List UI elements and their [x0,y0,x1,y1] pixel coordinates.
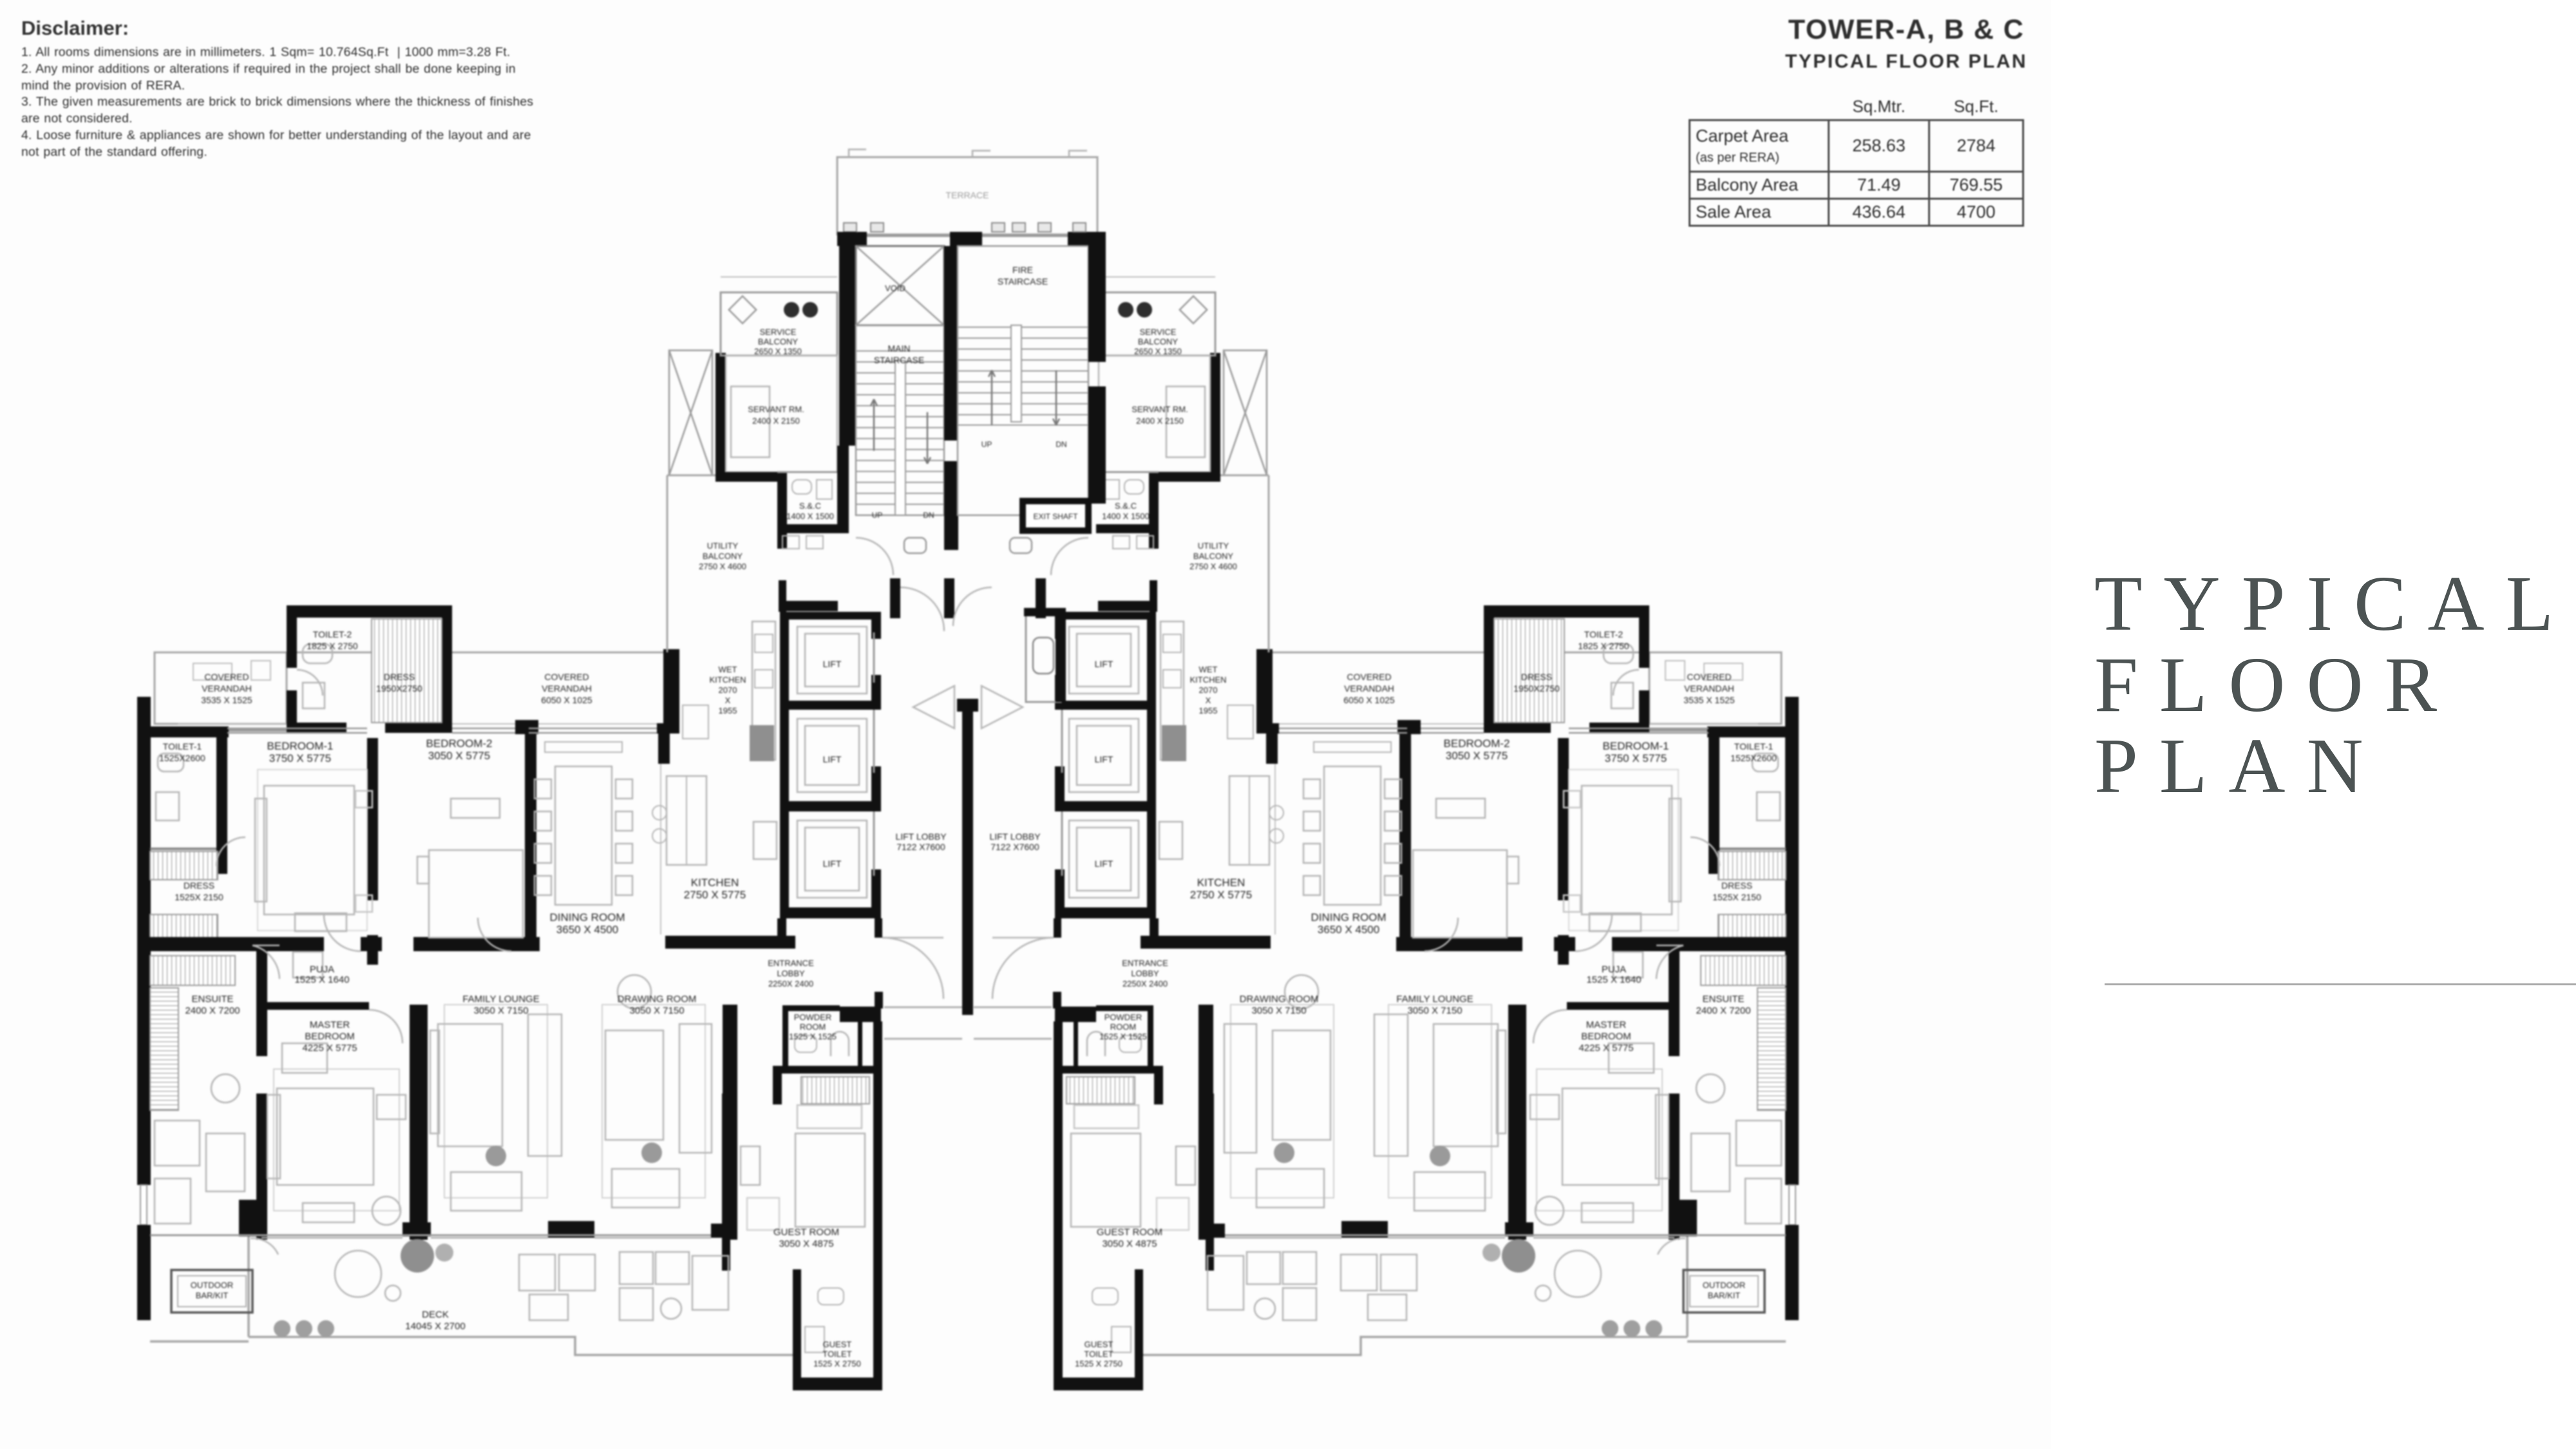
svg-text:KITCHEN: KITCHEN [709,675,746,685]
svg-text:6050 X 1025: 6050 X 1025 [541,695,592,705]
svg-text:ENSUITE: ENSUITE [191,994,233,1005]
svg-text:LIFT: LIFT [1095,858,1113,869]
svg-text:BALCONY: BALCONY [1138,337,1178,346]
svg-text:KITCHEN: KITCHEN [691,876,739,889]
svg-text:3750 X 5775: 3750 X 5775 [1605,752,1667,764]
svg-text:DRAWING ROOM: DRAWING ROOM [618,994,697,1005]
svg-text:BEDROOM-2: BEDROOM-2 [426,737,493,750]
svg-text:SERVICE: SERVICE [1140,327,1177,337]
svg-text:1525X 2150: 1525X 2150 [175,892,223,902]
svg-text:2750 X 4600: 2750 X 4600 [1189,562,1237,571]
svg-text:ENTRANCE: ENTRANCE [768,958,814,968]
svg-text:TOILET-2: TOILET-2 [1584,629,1624,639]
svg-text:SERVICE: SERVICE [760,327,797,337]
svg-text:VOID: VOID [885,283,905,293]
svg-text:TERRACE: TERRACE [946,190,989,200]
svg-text:VERANDAH: VERANDAH [1684,683,1734,694]
svg-text:DRAWING ROOM: DRAWING ROOM [1240,994,1319,1005]
svg-text:MAIN: MAIN [888,343,911,354]
svg-text:LIFT: LIFT [823,659,842,669]
svg-text:UTILITY: UTILITY [1198,541,1229,551]
svg-text:EXIT SHAFT: EXIT SHAFT [1033,512,1078,521]
svg-text:1525 X 1525: 1525 X 1525 [789,1032,837,1041]
svg-text:2400 X 7200: 2400 X 7200 [185,1005,240,1016]
svg-text:4225 X 5775: 4225 X 5775 [302,1043,357,1054]
svg-text:3750 X 5775: 3750 X 5775 [269,752,331,764]
svg-text:1955: 1955 [1199,706,1218,715]
svg-text:3050 X 7150: 3050 X 7150 [473,1005,528,1016]
svg-text:3050 X 7150: 3050 X 7150 [1407,1005,1462,1016]
svg-text:POWDER: POWDER [794,1012,832,1022]
svg-text:1525X2600: 1525X2600 [1730,753,1777,763]
svg-text:2070: 2070 [1199,685,1218,695]
svg-text:GUEST: GUEST [823,1340,852,1349]
svg-text:GUEST ROOM: GUEST ROOM [773,1227,839,1238]
svg-text:TOILET: TOILET [822,1349,851,1359]
svg-text:DINING ROOM: DINING ROOM [1311,911,1386,923]
svg-text:14045 X 2700: 14045 X 2700 [405,1321,465,1332]
svg-text:1525 X 1640: 1525 X 1640 [1586,974,1641,985]
svg-text:COVERED: COVERED [544,672,589,682]
svg-text:COVERED: COVERED [1347,672,1391,682]
svg-text:PUJA: PUJA [1602,964,1626,975]
svg-text:STAIRCASE: STAIRCASE [874,355,924,365]
svg-text:LIFT: LIFT [823,754,842,764]
svg-text:TOILET-1: TOILET-1 [1734,741,1774,752]
svg-text:1525 X 2750: 1525 X 2750 [813,1359,861,1368]
svg-text:SERVANT RM.: SERVANT RM. [748,404,804,414]
svg-text:2650 X 1350: 2650 X 1350 [1134,346,1182,356]
svg-text:6050 X 1025: 6050 X 1025 [1343,695,1395,705]
svg-text:1525 X 1640: 1525 X 1640 [294,974,349,985]
svg-text:UP: UP [872,511,883,520]
svg-text:4225 X 5775: 4225 X 5775 [1578,1043,1633,1054]
svg-text:TOILET-1: TOILET-1 [163,741,202,752]
svg-text:BALCONY: BALCONY [1193,551,1233,561]
svg-text:2750 X 4600: 2750 X 4600 [699,562,746,571]
svg-text:2250X 2400: 2250X 2400 [768,979,813,989]
svg-text:X: X [725,696,731,705]
svg-text:1825 X 2750: 1825 X 2750 [1578,641,1629,651]
svg-text:OUTDOOR: OUTDOOR [1703,1280,1745,1290]
svg-text:LIFT: LIFT [1095,754,1113,764]
svg-text:2070: 2070 [719,685,737,695]
svg-text:ROOM: ROOM [800,1022,826,1032]
svg-text:FAMILY LOUNGE: FAMILY LOUNGE [1396,994,1473,1005]
svg-text:LIFT: LIFT [1095,659,1113,669]
svg-text:COVERED: COVERED [1687,672,1731,682]
svg-text:ENTRANCE: ENTRANCE [1122,958,1168,968]
svg-text:3050 X 4875: 3050 X 4875 [1102,1238,1157,1249]
svg-text:DRESS: DRESS [1521,672,1552,682]
svg-text:1525X 2150: 1525X 2150 [1712,892,1761,902]
svg-text:X: X [1206,696,1211,705]
svg-text:1950X2750: 1950X2750 [1513,683,1560,694]
svg-text:DN: DN [923,511,934,520]
svg-text:7122 X7600: 7122 X7600 [990,842,1039,852]
svg-text:GUEST: GUEST [1084,1340,1113,1349]
svg-text:3650 X 4500: 3650 X 4500 [1318,923,1379,936]
svg-text:LOBBY: LOBBY [777,969,805,978]
svg-text:1525X2600: 1525X2600 [159,753,205,763]
svg-text:1825 X 2750: 1825 X 2750 [307,641,358,651]
svg-text:3650 X 4500: 3650 X 4500 [556,923,618,936]
svg-text:VERANDAH: VERANDAH [542,683,592,694]
svg-text:DINING ROOM: DINING ROOM [549,911,625,923]
svg-text:2750 X 5775: 2750 X 5775 [684,889,746,901]
svg-text:1525 X 2750: 1525 X 2750 [1075,1359,1122,1368]
svg-text:DRESS: DRESS [384,672,415,682]
svg-text:POWDER: POWDER [1104,1012,1142,1022]
svg-text:LOBBY: LOBBY [1131,969,1159,978]
svg-text:3050 X 5775: 3050 X 5775 [1446,750,1508,762]
svg-text:UP: UP [981,440,992,449]
svg-text:TOILET: TOILET [1084,1349,1113,1359]
svg-text:1525 X 1525: 1525 X 1525 [1099,1032,1147,1041]
svg-text:TOILET-2: TOILET-2 [313,629,352,639]
svg-text:2400 X 2150: 2400 X 2150 [752,416,800,426]
svg-text:3050 X 7150: 3050 X 7150 [1251,1005,1306,1016]
svg-text:COVERED: COVERED [204,672,249,682]
svg-text:KITCHEN: KITCHEN [1189,675,1226,685]
svg-text:VERANDAH: VERANDAH [1344,683,1394,694]
svg-text:3050 X 4875: 3050 X 4875 [779,1238,833,1249]
svg-text:LIFT LOBBY: LIFT LOBBY [989,831,1041,842]
svg-text:BEDROOM-1: BEDROOM-1 [267,740,334,752]
svg-text:DN: DN [1056,440,1066,449]
svg-text:ENSUITE: ENSUITE [1702,994,1744,1005]
svg-text:BEDROOM: BEDROOM [1581,1031,1631,1042]
svg-text:LIFT: LIFT [823,858,842,869]
svg-text:BEDROOM-2: BEDROOM-2 [1444,737,1510,750]
svg-text:DECK: DECK [422,1309,449,1320]
svg-text:2650 X 1350: 2650 X 1350 [754,346,802,356]
svg-text:3535 X 1525: 3535 X 1525 [1683,695,1735,705]
svg-text:KITCHEN: KITCHEN [1197,876,1245,889]
svg-text:3535 X 1525: 3535 X 1525 [201,695,252,705]
svg-text:MASTER: MASTER [1586,1019,1627,1030]
svg-text:GUEST ROOM: GUEST ROOM [1097,1227,1162,1238]
svg-text:OUTDOOR: OUTDOOR [191,1280,233,1290]
svg-text:BEDROOM-1: BEDROOM-1 [1603,740,1669,752]
svg-text:7122 X7600: 7122 X7600 [896,842,945,852]
svg-text:BEDROOM: BEDROOM [305,1031,355,1042]
svg-text:2750 X 5775: 2750 X 5775 [1190,889,1252,901]
svg-text:STAIRCASE: STAIRCASE [998,276,1048,287]
svg-text:1400 X 1500: 1400 X 1500 [1102,511,1150,521]
svg-text:3050 X 7150: 3050 X 7150 [629,1005,684,1016]
svg-text:DRESS: DRESS [184,880,214,891]
svg-text:WET: WET [1199,665,1218,674]
svg-text:2250X 2400: 2250X 2400 [1122,979,1168,989]
svg-text:1400 X 1500: 1400 X 1500 [786,511,834,521]
svg-text:BALCONY: BALCONY [758,337,798,346]
svg-text:SERVANT RM.: SERVANT RM. [1132,404,1188,414]
svg-text:3050 X 5775: 3050 X 5775 [428,750,490,762]
svg-text:PUJA: PUJA [310,964,334,975]
svg-text:1950X2750: 1950X2750 [376,683,422,694]
svg-text:BAR/KIT: BAR/KIT [1708,1291,1741,1300]
svg-text:2400 X 2150: 2400 X 2150 [1136,416,1184,426]
svg-text:WET: WET [719,665,737,674]
svg-text:BAR/KIT: BAR/KIT [196,1291,229,1300]
svg-text:BALCONY: BALCONY [703,551,743,561]
svg-text:VERANDAH: VERANDAH [202,683,252,694]
svg-text:FIRE: FIRE [1012,265,1033,275]
svg-text:2400 X 7200: 2400 X 7200 [1696,1005,1750,1016]
svg-text:ROOM: ROOM [1110,1022,1136,1032]
svg-text:FAMILY LOUNGE: FAMILY LOUNGE [462,994,539,1005]
svg-text:DRESS: DRESS [1721,880,1752,891]
svg-text:1955: 1955 [719,706,737,715]
svg-text:UTILITY: UTILITY [707,541,739,551]
svg-text:S.&.C: S.&.C [1115,501,1137,511]
svg-text:MASTER: MASTER [310,1019,350,1030]
svg-text:LIFT LOBBY: LIFT LOBBY [895,831,947,842]
svg-text:S.&.C: S.&.C [799,501,821,511]
